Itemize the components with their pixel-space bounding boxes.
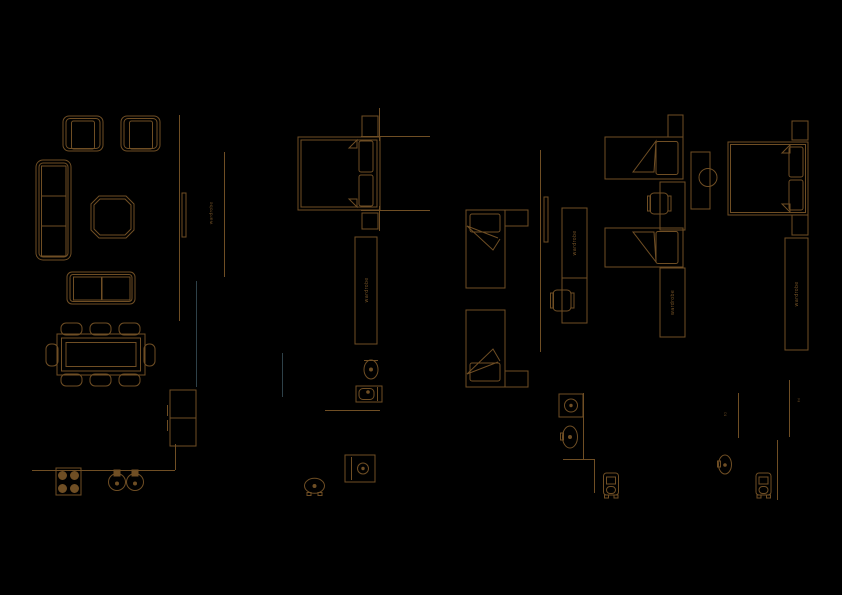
stove [56,468,81,495]
wardrobe-2: wardrobe [562,208,587,278]
desk-chair-2 [648,193,672,214]
armchair-1 [63,116,103,151]
kitchen-sink [109,470,144,491]
sofa-three-seat [36,160,71,260]
desk-2 [660,182,685,230]
closet-label: wardrobe [209,202,215,225]
double-bed-1 [298,137,380,210]
loveseat [67,272,135,304]
wardrobe-4-text: wardrobe [794,281,800,306]
wardrobe-1-text: wardrobe [364,277,370,302]
nightstand-4 [505,371,528,387]
closet-door-leaf [182,193,186,237]
floor-plan-page: wardrobewardrobewardrobewardrobewardrobe… [0,0,842,595]
nightstand-2 [362,213,378,229]
double-bed-2 [728,142,808,215]
single-bed-1 [466,210,505,288]
nightstand-1 [362,116,378,137]
single-bed-3 [605,137,683,179]
wardrobe-1: wardrobe [355,237,377,344]
wardrobe-3: wardrobe [660,268,685,337]
floor-plan-canvas: wardrobewardrobewardrobewardrobewardrobe… [0,0,842,595]
wardrobe-3-text: wardrobe [670,290,676,315]
single-bed-4 [605,228,683,267]
toilet-1 [364,360,378,379]
toilet-2 [561,426,578,448]
wardrobe-2-text: wardrobe [572,230,578,255]
dining-table [57,334,145,375]
corridor-door-leaf [544,197,548,242]
wardrobe-4: wardrobe [785,238,808,350]
dressing-table [691,152,717,209]
toilet-tank-2 [756,473,771,498]
nightstand-5 [668,115,683,137]
single-bed-2 [466,310,505,387]
nightstand-7 [792,215,808,235]
wall-kitchen-counter [32,444,176,471]
tiny-label-1-text: fd [724,412,728,416]
tiny-label-1: fd [724,412,728,416]
washbasin-2 [559,394,583,417]
nightstand-6 [792,121,808,140]
sink-oval-1 [305,478,325,495]
closet-label-text: wardrobe [209,202,215,225]
coffee-table [91,196,134,238]
washing-machine [345,455,375,482]
wall-bath-right [739,380,790,500]
washbasin-1 [356,386,382,402]
wall-bath-mid [563,393,595,493]
tiny-label-2-text: fd [797,398,801,402]
dining-chairs [46,323,155,386]
tiny-label-2: fd [797,398,801,402]
toilet-tank-1 [604,473,619,498]
nightstand-3 [505,210,528,226]
armchair-2 [121,116,160,151]
kitchen-cabinet [168,390,197,446]
toilet-3 [718,455,732,474]
